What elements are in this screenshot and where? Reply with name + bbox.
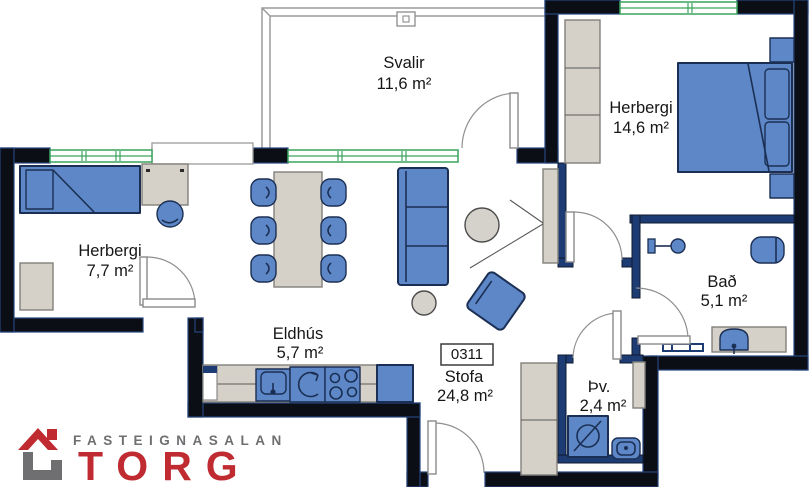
fridge xyxy=(377,365,413,402)
nightstand xyxy=(770,174,794,198)
room-label-main-bedroom: Herbergi xyxy=(609,99,672,117)
balcony-slab-edge xyxy=(152,143,253,164)
dining-chair xyxy=(321,217,346,244)
room-area-bathroom: 5,1 m² xyxy=(701,292,748,310)
entry-door xyxy=(428,421,484,474)
logo-house-base xyxy=(23,452,62,480)
wardrobe xyxy=(565,20,600,163)
room-label-bathroom: Bað xyxy=(707,273,736,291)
laundry-door xyxy=(573,311,621,359)
dining-chair xyxy=(321,179,346,206)
entry-closet xyxy=(521,363,557,475)
dining-set xyxy=(251,172,346,287)
small-bedroom-door xyxy=(140,257,195,307)
main-bedroom-furniture xyxy=(565,20,794,198)
iwall-living-bedroom xyxy=(558,163,566,258)
logo-house-icon xyxy=(18,428,62,480)
wall-small-bedroom-bottom xyxy=(0,318,143,332)
double-bed-pillow xyxy=(765,69,789,119)
small-bedroom-furniture xyxy=(20,164,188,310)
towel-radiator xyxy=(663,344,703,351)
dining-chair xyxy=(321,255,346,282)
counter-end-cap xyxy=(203,366,217,373)
single-bed-pillow xyxy=(26,170,53,209)
shower-head xyxy=(671,239,685,253)
floorplan-svg: Svalir 11,6 m² Herbergi 14,6 m² Herbergi… xyxy=(0,0,810,487)
coffee-table xyxy=(465,208,499,242)
room-area-balcony: 11,6 m² xyxy=(377,75,432,93)
wall-bathroom-bottom xyxy=(650,356,808,370)
living-room-furniture xyxy=(398,168,558,332)
logo-brand-text: TORG xyxy=(78,443,252,487)
room-label-kitchen: Eldhús xyxy=(273,325,323,343)
shower-mount xyxy=(648,239,655,253)
wall-bedroom-left-vertical xyxy=(545,0,558,163)
wall-bedroom-top-left xyxy=(545,0,620,14)
room-area-small-bedroom: 7,7 m² xyxy=(87,262,134,280)
armchair-seat xyxy=(465,270,526,331)
iwall-laundry-left xyxy=(558,355,566,462)
dining-chair xyxy=(251,217,276,244)
iwall-bathroom-top xyxy=(630,215,794,223)
room-label-laundry: Þv. xyxy=(588,378,611,396)
wall-right xyxy=(794,0,808,370)
room-area-living: 24,8 m² xyxy=(437,387,493,405)
iwall-bathroom-left-upper xyxy=(632,215,640,298)
window-living xyxy=(288,150,458,162)
wall-kitchen-bottom xyxy=(188,403,420,417)
room-label-balcony: Svalir xyxy=(383,54,425,72)
unit-number: 0311 xyxy=(451,346,483,363)
laundry-cabinet xyxy=(633,362,645,408)
room-label-living: Stofa xyxy=(445,368,484,386)
logo-chimney xyxy=(47,429,57,440)
armchair xyxy=(465,270,526,331)
room-area-kitchen: 5,7 m² xyxy=(277,344,324,362)
unit-number-badge: 0311 xyxy=(441,344,493,365)
dining-chair xyxy=(251,255,276,282)
toilet xyxy=(751,237,784,263)
desk-mark xyxy=(146,169,150,172)
dining-chair xyxy=(251,179,276,206)
bathroom-door xyxy=(636,288,690,344)
window-main-bedroom xyxy=(620,2,737,14)
nightstand xyxy=(770,38,794,62)
small-bedroom-closet xyxy=(20,263,53,310)
wall-bottom-right-of-entry xyxy=(485,472,658,487)
wall-small-bedroom-bottom-jamb xyxy=(195,318,203,332)
side-table xyxy=(412,291,436,315)
dining-table xyxy=(274,172,322,287)
room-label-small-bedroom: Herbergi xyxy=(78,242,141,260)
wall-left xyxy=(0,148,14,332)
floorplan-page: Svalir 11,6 m² Herbergi 14,6 m² Herbergi… xyxy=(0,0,810,487)
laundry-sink-drain xyxy=(624,446,628,450)
room-area-main-bedroom: 14,6 m² xyxy=(613,119,669,137)
tv-panel xyxy=(543,169,558,263)
tv-cone-line xyxy=(510,200,543,223)
window-small-bedroom xyxy=(50,150,152,162)
entrance-closet xyxy=(521,363,557,475)
balcony-drain-box xyxy=(397,12,415,26)
double-bed-pillow xyxy=(765,122,789,166)
desk-mark xyxy=(180,169,184,172)
main-bedroom-door xyxy=(566,212,622,262)
logo: FASTEIGNASALAN TORG xyxy=(18,428,288,487)
kitchen-counter xyxy=(203,365,413,402)
room-area-laundry: 2,4 m² xyxy=(580,397,627,415)
wall-kitchen-left-vertical xyxy=(188,318,203,417)
